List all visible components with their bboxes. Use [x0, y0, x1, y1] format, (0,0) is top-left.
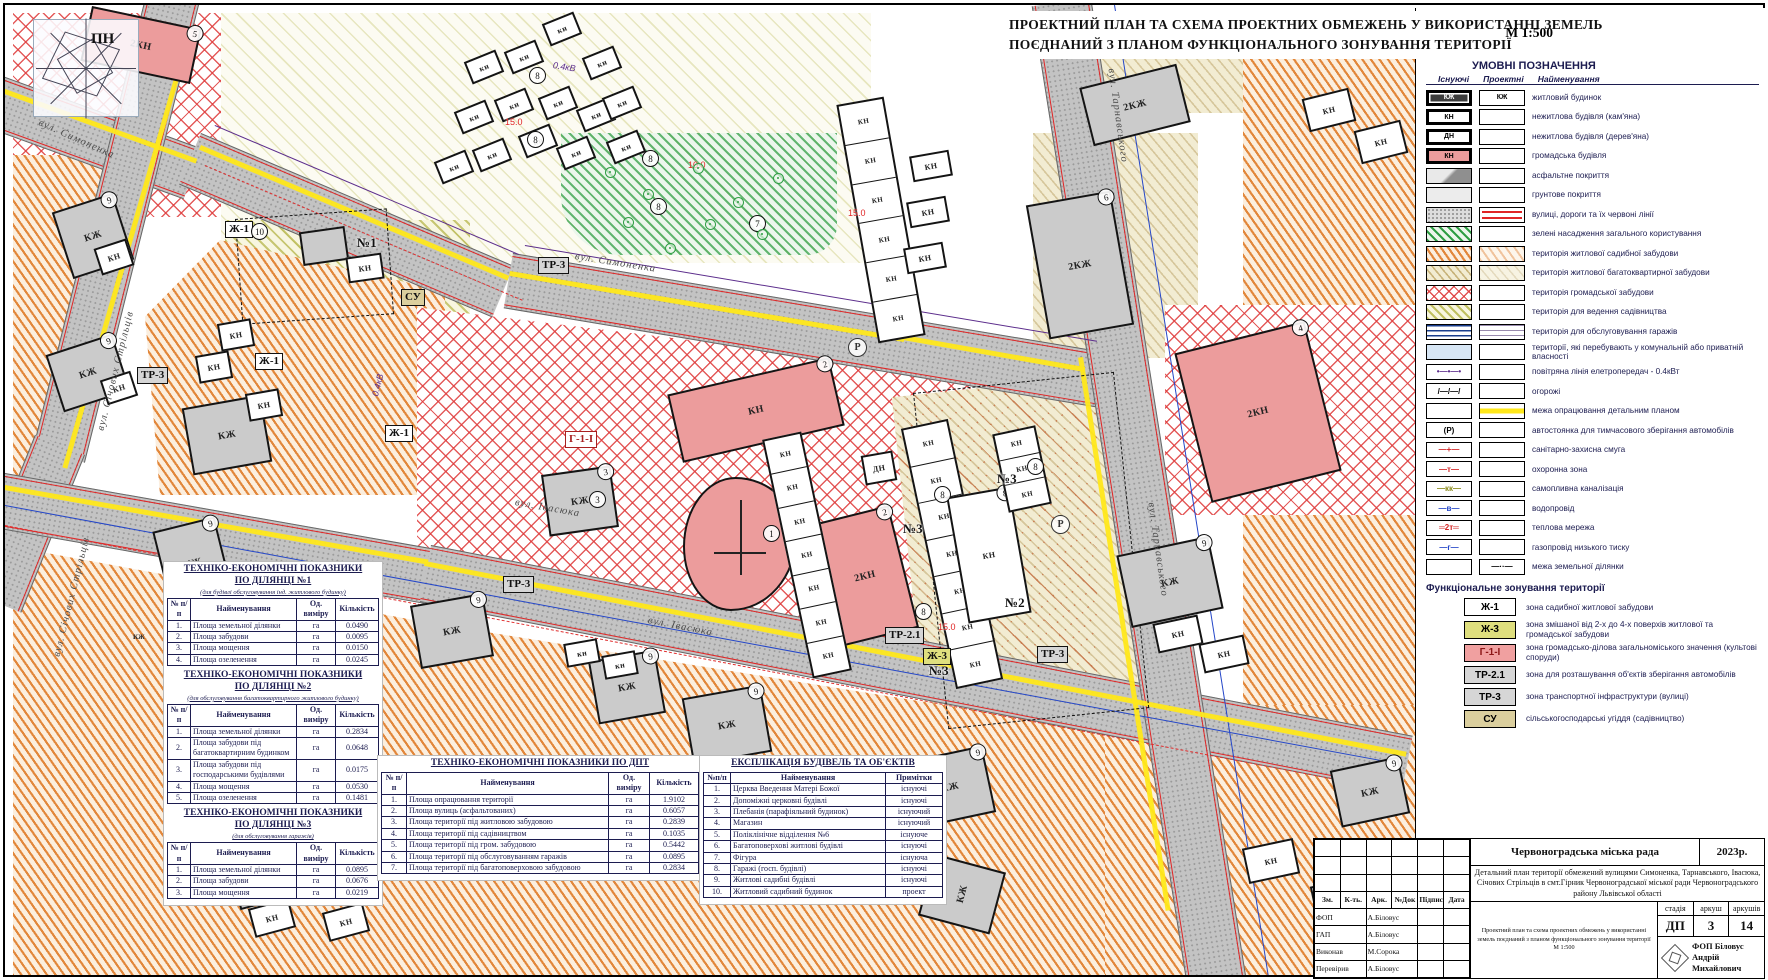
- legend-swatch-existing: [1426, 344, 1472, 360]
- table-cell: Площа забудови під господарськими будівл…: [191, 759, 297, 781]
- legend-item-label: автостоянка для тимчасового зберігання а…: [1532, 426, 1759, 435]
- building-label: кн: [596, 57, 609, 69]
- legend-row: /—/—/огорожі: [1426, 383, 1759, 400]
- column-header: Од. виміру: [609, 772, 650, 794]
- legend-row: —··—межа земельної ділянки: [1426, 558, 1759, 575]
- table-cell: 0.6057: [650, 806, 699, 817]
- zone-label-tr3: ТР-3: [1037, 646, 1068, 663]
- zoning-row: Ж-1зона садибної житлової забудови: [1464, 598, 1759, 616]
- tep-plot-1: № п/пНайменуванняОд. виміруКількість1.Пл…: [167, 598, 379, 666]
- table-cell: га: [297, 643, 336, 654]
- explication-table: ЕКСПЛІКАЦІЯ БУДІВЕЛЬ ТА ОБ'ЄКТІВ№п/пНайм…: [699, 755, 947, 905]
- drawing-scale: М 1:500: [1505, 25, 1553, 41]
- table-cell: 5.: [704, 829, 731, 840]
- parking-badge: Р: [1051, 515, 1070, 534]
- legend-row: —в—водопровід: [1426, 500, 1759, 517]
- tep-table-dpt: ТЕХНІКО-ЕКОНОМІЧНІ ПОКАЗНИКИ ПО ДПТ№ п/п…: [377, 755, 703, 881]
- table-cell: 0.5442: [650, 840, 699, 851]
- table-cell: існуючий: [886, 818, 943, 829]
- table-cell: 2.: [168, 738, 191, 760]
- legend-row: ДНнежитлова будівля (дерев'яна): [1426, 128, 1759, 145]
- zone-label-tr3: ТР-3: [538, 257, 569, 274]
- tree-icon: [665, 243, 676, 254]
- object-badge-8: 8: [915, 603, 932, 620]
- table-cell: 3.: [704, 807, 731, 818]
- column-header: Од. виміру: [297, 843, 336, 865]
- zone-name: зона змішаної від 2-х до 4-х поверхів жи…: [1526, 620, 1759, 639]
- legend-item-label: нежитлова будівля (кам'яна): [1532, 112, 1759, 121]
- building-label: КН: [918, 252, 932, 263]
- table-cell: проект: [886, 886, 943, 897]
- dimension-label: 15.0: [505, 117, 523, 127]
- legend-item-label: самопливна каналізація: [1532, 484, 1759, 493]
- zoning-row: СУсільськогосподарські угіддя (садівницт…: [1464, 710, 1759, 728]
- stage-sheet-values: стадія ДП аркуш 3 аркушів 14: [1658, 902, 1764, 937]
- legend-item-label: асфальтне покриття: [1532, 171, 1759, 180]
- zone-code: Ж-3: [1464, 621, 1516, 639]
- role-name: А.Біловус: [1366, 960, 1418, 977]
- legend-swatch-existing: —в—: [1426, 500, 1472, 516]
- column-header: Найменування: [191, 843, 297, 865]
- zone-code: СУ: [1464, 710, 1516, 728]
- table-cell: га: [609, 794, 650, 805]
- legend-row: —+—санітарно-захисна смуга: [1426, 441, 1759, 458]
- table-title: ЕКСПЛІКАЦІЯ БУДІВЕЛЬ ТА ОБ'ЄКТІВ: [703, 758, 943, 770]
- sheet-label: аркуш: [1694, 902, 1729, 916]
- table-title: ТЕХНІКО-ЕКОНОМІЧНІ ПОКАЗНИКИ: [167, 564, 379, 576]
- legend-item-label: територія житлової садибної забудови: [1532, 249, 1759, 258]
- revision-cell: [1340, 857, 1366, 874]
- legend-swatch-existing: КН: [1426, 109, 1472, 125]
- stage-value: ДП: [1658, 916, 1693, 936]
- zone-code: ТР-3: [1464, 688, 1516, 706]
- tep-table-plot2: ТЕХНІКО-ЕКОНОМІЧНІ ПОКАЗНИКИПО ДІЛЯНЦІ №…: [167, 670, 379, 804]
- explication: №п/пНайменуванняПримітки1.Церква Введенн…: [703, 772, 943, 898]
- role-name: М.Сорока: [1366, 943, 1418, 960]
- zone-code: Ж-1: [1464, 598, 1516, 616]
- table-cell: Площа опрацювання території: [407, 794, 609, 805]
- legend-swatch-projected: [1479, 422, 1525, 438]
- zoning-row: Ж-3зона змішаної від 2-х до 4-х поверхів…: [1464, 620, 1759, 639]
- building-label: КЖ: [442, 624, 462, 638]
- zoning-items: Ж-1зона садибної житлової забудовиЖ-3зон…: [1426, 598, 1759, 728]
- revision-cell: [1444, 874, 1470, 891]
- tree-icon: [757, 229, 768, 240]
- object-badge-8: 8: [1027, 458, 1044, 475]
- table-title: ТЕХНІКО-ЕКОНОМІЧНІ ПОКАЗНИКИ ПО ДПТ: [381, 758, 699, 770]
- role-label: ФОП: [1315, 909, 1367, 926]
- legend-row: межа опрацювання детальним планом: [1426, 402, 1759, 419]
- legend-swatch-existing: КН: [1426, 148, 1472, 164]
- building-label: кн: [448, 161, 461, 173]
- legend-item-label: санітарно-захисна смуга: [1532, 445, 1759, 454]
- legend-swatch-existing: ДН: [1426, 129, 1472, 145]
- revision-col-header: Підпис: [1418, 891, 1444, 908]
- legend-row: —т—охоронна зона: [1426, 461, 1759, 478]
- object-badge-8: 8: [529, 67, 546, 84]
- table-cell: 1.9102: [650, 794, 699, 805]
- plot-number-3: №3: [997, 471, 1017, 487]
- legend-panel: УМОВНІ ПОЗНАЧЕННЯ Існуючі Проектні Найме…: [1415, 8, 1767, 972]
- zone-label-tr3: ТР-3: [503, 576, 534, 593]
- column-header: Кількість: [336, 704, 379, 726]
- table-cell: 0.2834: [336, 726, 379, 737]
- building-label: КЖ: [78, 365, 99, 381]
- legend-items: КЖКЖжитловий будинокКНнежитлова будівля …: [1426, 89, 1759, 575]
- sheets-label: аркушів: [1729, 902, 1764, 916]
- legend-col-existing: Існуючі: [1438, 74, 1469, 84]
- legend-item-label: нежитлова будівля (дерев'яна): [1532, 132, 1759, 141]
- table-cell: 0.2839: [650, 817, 699, 828]
- sheets-cell: аркушів 14: [1729, 902, 1764, 936]
- legend-item-label: газопровід низького тиску: [1532, 543, 1759, 552]
- legend-swatch-projected: [1479, 520, 1525, 536]
- revision-cell: [1418, 874, 1444, 891]
- building-label: КН: [921, 206, 935, 217]
- legend-swatch-projected: [1479, 109, 1525, 125]
- table-cell: 1.: [168, 620, 191, 631]
- column-header: Найменування: [407, 772, 609, 794]
- building-label: КН: [1374, 136, 1389, 148]
- revision-cell: [1392, 840, 1418, 857]
- building-label: КН: [1264, 855, 1279, 867]
- legend-swatch-existing: [1426, 168, 1472, 184]
- building-кн: КН: [195, 350, 233, 383]
- legend-item-label: охоронна зона: [1532, 465, 1759, 474]
- legend-item-label: території, які перебувають у комунальній…: [1532, 343, 1759, 361]
- revision-cell: [1340, 874, 1366, 891]
- building-label: КН: [747, 403, 765, 417]
- legend-row: грунтове покриття: [1426, 187, 1759, 204]
- building-label: КН: [229, 329, 243, 340]
- table-cell: га: [297, 781, 336, 792]
- table-cell: 2.: [168, 876, 191, 887]
- table-cell: 1.: [168, 726, 191, 737]
- column-header: №п/п: [704, 772, 731, 783]
- revision-cell: [1315, 874, 1341, 891]
- zone-name: зона транспортної інфраструктури (вулиці…: [1526, 692, 1759, 701]
- building-label: кн: [616, 97, 629, 109]
- table-cell: 0.0895: [650, 851, 699, 862]
- legend-item-label: зелені насадження загального користуванн…: [1532, 229, 1759, 238]
- table-cell: га: [297, 620, 336, 631]
- zone-code: ТР-2.1: [1464, 666, 1516, 684]
- year-label: 2023р.: [1699, 839, 1764, 865]
- legend-row: територія житлової садибної забудови: [1426, 245, 1759, 262]
- building-кн: КН: [909, 150, 953, 183]
- revision-col-header: Зм.: [1315, 891, 1341, 908]
- revision-cell: [1392, 874, 1418, 891]
- revision-col-header: Дата: [1444, 891, 1470, 908]
- dimension-label: 15.0: [938, 622, 956, 632]
- legend-row: КНнежитлова будівля (кам'яна): [1426, 109, 1759, 126]
- column-header: Примітки: [886, 772, 943, 783]
- table-cell: Площа земельної ділянки: [191, 864, 297, 875]
- table-cell: га: [609, 806, 650, 817]
- plot-number-3: №3: [903, 521, 923, 537]
- legend-swatch-projected: [1479, 148, 1525, 164]
- legend-item-label: межа земельної ділянки: [1532, 562, 1759, 571]
- building-кж: КЖ9: [410, 593, 494, 669]
- table-cell: Допоміжні церковні будівлі: [731, 795, 886, 806]
- table-cell: Багатоповерхові житлові будівлі: [731, 841, 886, 852]
- legend-row: (Р)автостоянка для тимчасового зберіганн…: [1426, 422, 1759, 439]
- legend-row: ═2т═теплова мережа: [1426, 519, 1759, 536]
- north-arrow: [33, 19, 139, 117]
- building-label: КН: [1171, 628, 1186, 640]
- table-cell: 6.: [382, 851, 407, 862]
- table-cell: 0.1481: [336, 792, 379, 803]
- tep-plot-2: № п/пНайменуванняОд. виміруКількість1.Пл…: [167, 704, 379, 805]
- legend-swatch-existing: [1426, 403, 1472, 419]
- building-tag: кж: [133, 631, 145, 641]
- tep-table-plot3: ТЕХНІКО-ЕКОНОМІЧНІ ПОКАЗНИКИПО ДІЛЯНЦІ №…: [167, 808, 379, 899]
- dimension-label: 15.0: [848, 208, 866, 218]
- legend-swatch-projected: [1479, 461, 1525, 477]
- legend-swatch-projected: [1479, 324, 1525, 340]
- legend-item-label: житловий будинок: [1532, 93, 1759, 102]
- building-дн: ДН: [861, 450, 898, 485]
- legend-row: асфальтне покриття: [1426, 167, 1759, 184]
- object-badge-1: 1: [763, 525, 780, 542]
- zone-name: зона садибної житлової забудови: [1526, 603, 1759, 612]
- zone-patch-green: [561, 133, 837, 255]
- revision-col-header: №Док: [1392, 891, 1418, 908]
- sheet-title: Проектний план та схема проектних обмеже…: [1471, 902, 1658, 978]
- table-cell: Поліклінічне відділення №6: [731, 829, 886, 840]
- table-cell: га: [609, 817, 650, 828]
- role-name: А.Біловус: [1366, 909, 1418, 926]
- table-cell: 0.0676: [336, 876, 379, 887]
- plot-number-3: №3: [929, 663, 949, 679]
- legend-swatch-existing: [1426, 559, 1472, 575]
- table-cell: існуючі: [886, 784, 943, 795]
- zone-label-su: СУ: [401, 289, 425, 306]
- table-cell: існуючі: [886, 795, 943, 806]
- legend-swatch-existing: /—/—/: [1426, 383, 1472, 399]
- table-cell: 0.0219: [336, 887, 379, 898]
- zone-name: зона громадсько-ділова загальноміського …: [1526, 643, 1759, 662]
- table-cell: 9.: [704, 875, 731, 886]
- object-badge-10: 10: [251, 223, 268, 240]
- table-cell: 2.: [168, 631, 191, 642]
- table-cell: га: [609, 840, 650, 851]
- table-cell: 0.0648: [336, 738, 379, 760]
- column-header: Кількість: [336, 843, 379, 865]
- column-header: Од. виміру: [297, 598, 336, 620]
- building-label: кн: [614, 660, 626, 671]
- legend-swatch-projected: [1479, 226, 1525, 242]
- revision-cell: [1418, 857, 1444, 874]
- role-name: А.Біловус: [1366, 926, 1418, 943]
- table-cell: Гаражі (госп. будівлі): [731, 864, 886, 875]
- table-cell: існуюче: [886, 829, 943, 840]
- building-label: кн: [576, 648, 588, 659]
- legend-swatch-projected: [1479, 304, 1525, 320]
- legend-item-label: межа опрацювання детальним планом: [1532, 406, 1759, 415]
- drawing-title-line1: ПРОЕКТНИЙ ПЛАН ТА СХЕМА ПРОЕКТНИХ ОБМЕЖЕ…: [1009, 15, 1757, 35]
- table-cell: га: [297, 876, 336, 887]
- legend-item-label: огорожі: [1532, 387, 1759, 396]
- table-cell: га: [297, 738, 336, 760]
- building-label: 2КЖ: [1122, 97, 1148, 113]
- stage-cell: стадія ДП: [1658, 902, 1694, 936]
- building-кн: КН: [245, 388, 283, 421]
- legend-swatch-existing: КЖ: [1426, 90, 1472, 106]
- legend-swatch-projected: [1479, 539, 1525, 555]
- zone-name: сільськогосподарські угіддя (садівництво…: [1526, 714, 1759, 723]
- legend-swatch-projected: [1479, 442, 1525, 458]
- table-cell: існуючі: [886, 864, 943, 875]
- legend-swatch-projected: [1479, 265, 1525, 281]
- column-header: Найменування: [731, 772, 886, 783]
- table-cell: Площа території під садівництвом: [407, 828, 609, 839]
- legend-swatch-existing: (Р): [1426, 422, 1472, 438]
- table-cell: існуючі: [886, 875, 943, 886]
- building-label: КЖ: [617, 680, 637, 694]
- table-cell: Площа озеленення: [191, 654, 297, 665]
- legend-swatch-projected: [1479, 481, 1525, 497]
- table-cell: га: [609, 828, 650, 839]
- sheet-cell: аркуш 3: [1694, 902, 1730, 936]
- legend-swatch-projected: [1479, 344, 1525, 360]
- table-cell: 5.: [382, 840, 407, 851]
- zone-label-zh1: Ж-1: [225, 221, 253, 238]
- title-block-revisions: Зм.К-ть.Арк.№ДокПідписДатаФОПА.БіловусГА…: [1314, 839, 1471, 978]
- zone-label-tr3: ТР-3: [137, 367, 168, 384]
- zoning-heading: Функціональне зонування території: [1426, 583, 1759, 594]
- table-cell: 4.: [382, 828, 407, 839]
- building-label: КЖ: [217, 428, 237, 442]
- legend-item-label: вулиці, дороги та їх червоні лінії: [1532, 210, 1759, 219]
- signature-cell: [1418, 926, 1444, 943]
- table-cell: існуючий: [886, 807, 943, 818]
- legend-item-label: грунтове покриття: [1532, 190, 1759, 199]
- legend-swatch-existing: —г—: [1426, 539, 1472, 555]
- building-cell: КН: [807, 636, 849, 676]
- title-block-bottom: Проектний план та схема проектних обмеже…: [1471, 902, 1764, 978]
- table-cell: існуючі: [886, 841, 943, 852]
- building-кн: КН: [903, 242, 947, 275]
- revision-cell: [1366, 874, 1392, 891]
- building-label: кн: [468, 111, 481, 123]
- legend-swatch-existing: —+—: [1426, 442, 1472, 458]
- column-header: Од. виміру: [297, 704, 336, 726]
- zone-label-zh1: Ж-1: [255, 353, 283, 370]
- legend-row: —кк—самопливна каналізація: [1426, 480, 1759, 497]
- legend-swatch-existing: [1426, 226, 1472, 242]
- column-header: № п/п: [168, 704, 191, 726]
- legend-item-label: територія житлової багатоквартирної забу…: [1532, 268, 1759, 277]
- legend-swatch-projected: [1479, 168, 1525, 184]
- zoning-row: Г-1-Ізона громадсько-ділова загальномісь…: [1464, 643, 1759, 662]
- project-description: Детальний план території обмежений вулиц…: [1471, 866, 1764, 902]
- building-label: кн: [590, 109, 603, 121]
- object-badge-8: 8: [934, 486, 951, 503]
- building-cell: КН: [873, 295, 923, 341]
- legend-heading: УМОВНІ ПОЗНАЧЕННЯ: [1472, 60, 1759, 72]
- table-cell: 3.: [168, 759, 191, 781]
- plot-number-2: №2: [1005, 595, 1025, 611]
- legend-swatch-projected: —··—: [1479, 559, 1525, 575]
- table-cell: 7.: [704, 852, 731, 863]
- legend-row: територія для обслуговування гаражів: [1426, 323, 1759, 340]
- column-header: Найменування: [191, 704, 297, 726]
- table-cell: га: [297, 887, 336, 898]
- table-cell: 4.: [168, 781, 191, 792]
- legend-swatch-projected: [1479, 383, 1525, 399]
- table-cell: 3.: [168, 643, 191, 654]
- building-cell: КН: [950, 642, 1001, 687]
- building-label: кн: [620, 141, 633, 153]
- table-cell: 0.0150: [336, 643, 379, 654]
- building-label: КН: [1217, 648, 1232, 660]
- building-кн: КН: [1198, 635, 1249, 674]
- revision-cell: [1366, 857, 1392, 874]
- building-кн: КН: [345, 253, 384, 284]
- firm-name: ФОП Біловус Андрій Михайлович: [1692, 941, 1760, 974]
- firm-block: ФОП Біловус Андрій Михайлович: [1658, 937, 1764, 978]
- building-label: КН: [265, 912, 280, 924]
- column-header: Найменування: [191, 598, 297, 620]
- building-label: кн: [518, 51, 531, 63]
- legend-row: територія для ведення садівництва: [1426, 304, 1759, 321]
- table-cell: га: [297, 726, 336, 737]
- table-cell: га: [297, 759, 336, 781]
- parking-badge: Р: [848, 338, 867, 357]
- table-cell: га: [609, 863, 650, 874]
- building-label: КЖ: [717, 718, 737, 732]
- legend-item-label: територія громадської забудови: [1532, 288, 1759, 297]
- object-badge-3: 3: [589, 491, 606, 508]
- revision-cell: [1340, 840, 1366, 857]
- legend-item-label: громадська будівля: [1532, 151, 1759, 160]
- tree-icon: [623, 217, 634, 228]
- zone-name: зона для розташування об'єктів зберіганн…: [1526, 670, 1759, 679]
- table-cell: Площа мощення: [191, 887, 297, 898]
- table-cell: га: [609, 851, 650, 862]
- signature-cell: [1418, 943, 1444, 960]
- zone-label-tr21: ТР-2.1: [885, 627, 924, 644]
- table-cell: 1.: [168, 864, 191, 875]
- building-кж: КЖ9: [682, 685, 773, 766]
- table-cell: га: [297, 631, 336, 642]
- north-label: ПН: [91, 31, 114, 48]
- tree-icon: [733, 197, 744, 208]
- table-cell: 0.0245: [336, 654, 379, 665]
- legend-row: —г—газопровід низького тиску: [1426, 539, 1759, 556]
- legend-swatch-projected: [1479, 500, 1525, 516]
- zone-code: Г-1-І: [1464, 644, 1516, 662]
- title-block: Зм.К-ть.Арк.№ДокПідписДатаФОПА.БіловусГА…: [1313, 838, 1765, 979]
- table-cell: Площа озеленення: [191, 792, 297, 803]
- date-cell: [1444, 943, 1470, 960]
- building-label: кн: [552, 97, 565, 109]
- legend-swatch-existing: •—•—•: [1426, 364, 1472, 380]
- tep-plot-3: № п/пНайменуванняОд. виміруКількість1.Пл…: [167, 842, 379, 899]
- table-cell: Площа вулиць (асфальтованих): [407, 806, 609, 817]
- legend-row: територія житлової багатоквартирної забу…: [1426, 265, 1759, 282]
- table-cell: 4.: [168, 654, 191, 665]
- table-cell: Площа забудови: [191, 876, 297, 887]
- legend-swatch-existing: [1426, 187, 1472, 203]
- sheets-value: 14: [1729, 916, 1764, 936]
- legend-row: території, які перебувають у комунальній…: [1426, 343, 1759, 361]
- signature-cell: [1418, 960, 1444, 977]
- table-cell: існуюча: [886, 852, 943, 863]
- table-cell: Магазин: [731, 818, 886, 829]
- table-title: ТЕХНІКО-ЕКОНОМІЧНІ ПОКАЗНИКИ: [167, 808, 379, 820]
